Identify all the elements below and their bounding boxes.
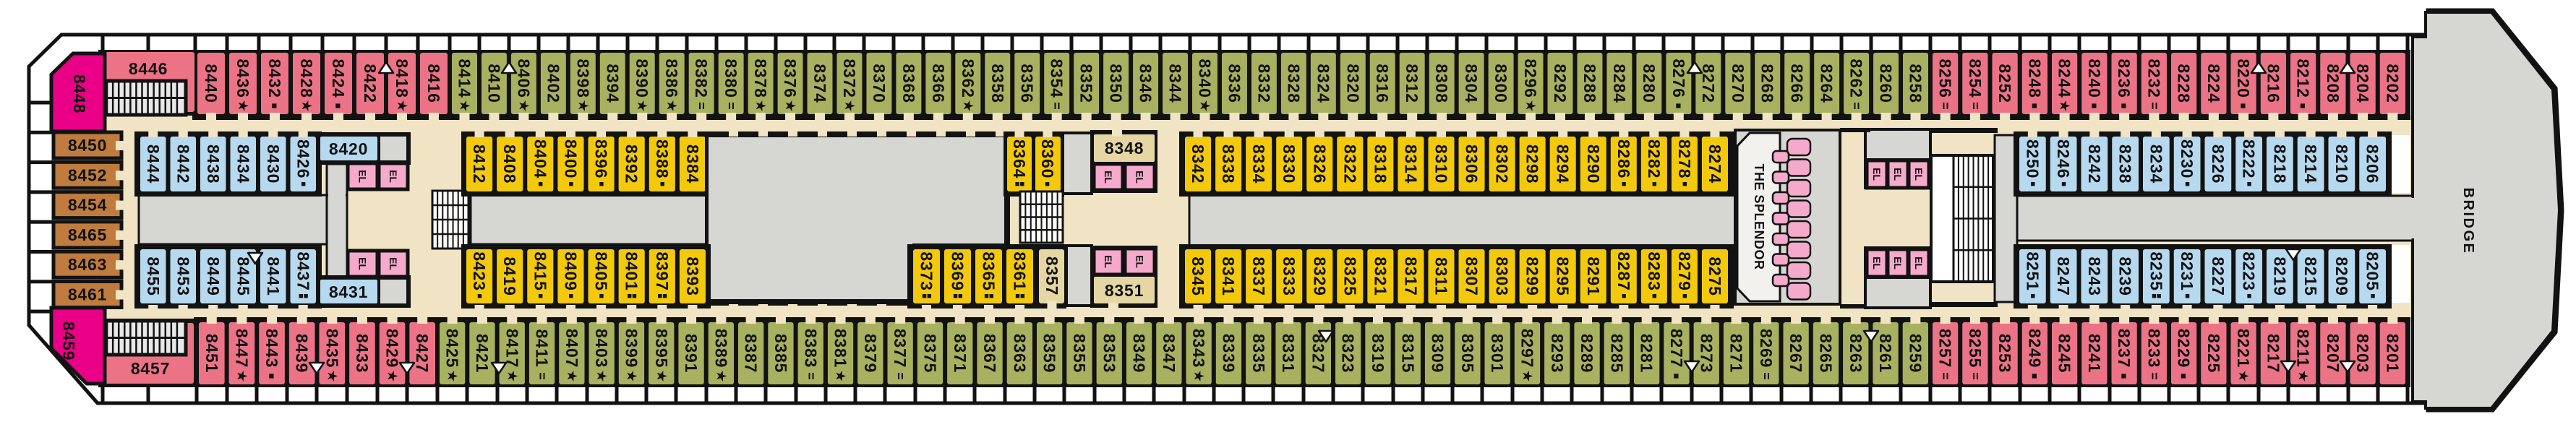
svg-text:▪▪: ▪▪ — [657, 287, 667, 305]
svg-text:=: = — [1849, 102, 1864, 111]
svg-text:8215: 8215 — [2301, 256, 2320, 296]
svg-text:8253: 8253 — [1995, 334, 2014, 373]
svg-text:8376: 8376 — [781, 59, 800, 98]
svg-text:=: = — [694, 102, 709, 111]
svg-text:8283: 8283 — [1645, 251, 1664, 290]
svg-text:8422: 8422 — [361, 64, 380, 103]
svg-text:8207: 8207 — [2324, 334, 2342, 373]
svg-text:EL: EL — [1871, 256, 1883, 269]
svg-text:8336: 8336 — [1225, 64, 1244, 103]
svg-text:8212: 8212 — [2294, 59, 2313, 98]
svg-text:8400: 8400 — [561, 139, 580, 178]
svg-text:8448: 8448 — [70, 74, 89, 113]
svg-text:■: ■ — [2119, 374, 2130, 380]
svg-text:8309: 8309 — [1429, 334, 1447, 373]
svg-text:▪: ▪ — [301, 175, 306, 193]
svg-text:8385: 8385 — [771, 334, 790, 373]
svg-text:▪: ▪ — [2246, 175, 2251, 193]
svg-text:8285: 8285 — [1607, 334, 1626, 373]
svg-text:EL: EL — [1913, 256, 1925, 269]
svg-text:8217: 8217 — [2264, 334, 2282, 373]
svg-text:★: ★ — [458, 100, 471, 112]
svg-text:▪: ▪ — [1651, 175, 1656, 193]
svg-text:8278: 8278 — [1675, 139, 1694, 178]
svg-text:8332: 8332 — [1254, 64, 1273, 103]
svg-text:8267: 8267 — [1786, 334, 1805, 373]
svg-text:8317: 8317 — [1401, 256, 1420, 296]
svg-text:8223: 8223 — [2240, 251, 2259, 290]
svg-text:8357: 8357 — [1043, 256, 1061, 296]
svg-text:8306: 8306 — [1463, 144, 1481, 184]
svg-text:8446: 8446 — [129, 59, 168, 78]
svg-text:8366: 8366 — [929, 64, 948, 103]
svg-text:8308: 8308 — [1432, 64, 1451, 103]
svg-text:8433: 8433 — [353, 334, 372, 373]
svg-text:★: ★ — [2296, 371, 2310, 382]
svg-text:▪▪: ▪▪ — [1014, 175, 1024, 193]
svg-text:8276: 8276 — [1669, 59, 1688, 98]
svg-text:8226: 8226 — [2209, 144, 2228, 184]
svg-text:EL: EL — [388, 257, 399, 270]
svg-text:8454: 8454 — [68, 196, 107, 215]
svg-text:8275: 8275 — [1706, 256, 1724, 296]
svg-text:8225: 8225 — [2204, 334, 2223, 373]
svg-text:▪: ▪ — [2246, 287, 2251, 305]
svg-text:8418: 8418 — [393, 59, 411, 98]
svg-text:8368: 8368 — [899, 64, 918, 103]
svg-text:8310: 8310 — [1432, 144, 1450, 184]
svg-text:EL: EL — [1103, 255, 1114, 268]
svg-text:■: ■ — [270, 103, 281, 110]
svg-text:8423: 8423 — [470, 251, 489, 290]
svg-text:▪: ▪ — [2030, 175, 2035, 193]
svg-text:8438: 8438 — [204, 144, 223, 184]
svg-text:8452: 8452 — [68, 165, 107, 184]
svg-text:8279: 8279 — [1675, 251, 1694, 290]
svg-text:★: ★ — [517, 100, 531, 112]
svg-text:8415: 8415 — [531, 251, 549, 290]
svg-text:8402: 8402 — [544, 64, 562, 103]
svg-text:8232: 8232 — [2144, 59, 2163, 98]
svg-text:8447: 8447 — [232, 329, 251, 368]
svg-text:8444: 8444 — [144, 144, 163, 184]
svg-text:8331: 8331 — [1279, 334, 1298, 373]
svg-text:8428: 8428 — [297, 59, 316, 98]
svg-text:8251: 8251 — [2023, 251, 2042, 290]
svg-text:8401: 8401 — [622, 251, 641, 290]
svg-text:8323: 8323 — [1339, 334, 1358, 373]
svg-text:8270: 8270 — [1729, 64, 1747, 103]
svg-text:8381: 8381 — [831, 329, 850, 368]
svg-text:8363: 8363 — [1010, 334, 1029, 373]
svg-text:8373: 8373 — [917, 251, 936, 290]
svg-text:8229: 8229 — [2175, 329, 2194, 368]
svg-text:8315: 8315 — [1398, 334, 1417, 373]
svg-text:8344: 8344 — [1166, 64, 1185, 103]
svg-text:8445: 8445 — [234, 256, 252, 296]
svg-text:8439: 8439 — [293, 334, 312, 373]
svg-text:8361: 8361 — [1011, 251, 1030, 290]
svg-text:8244: 8244 — [2055, 59, 2074, 98]
svg-text:▪: ▪ — [568, 287, 573, 305]
svg-text:★: ★ — [2058, 100, 2071, 112]
svg-text:8290: 8290 — [1584, 144, 1603, 184]
svg-text:EL: EL — [357, 257, 369, 270]
svg-text:8379: 8379 — [861, 334, 880, 373]
svg-text:8362: 8362 — [959, 59, 977, 98]
svg-text:■: ■ — [1671, 374, 1682, 380]
svg-text:★: ★ — [625, 371, 638, 382]
svg-text:=: = — [1938, 102, 1953, 111]
svg-text:8391: 8391 — [682, 334, 701, 373]
svg-text:★: ★ — [1192, 371, 1206, 382]
svg-text:★: ★ — [235, 371, 249, 382]
svg-text:=: = — [803, 372, 818, 381]
svg-text:8367: 8367 — [980, 334, 999, 373]
svg-text:8342: 8342 — [1189, 144, 1207, 184]
svg-text:★: ★ — [665, 100, 679, 112]
svg-text:8340: 8340 — [1195, 59, 1214, 98]
svg-text:8233: 8233 — [2144, 329, 2163, 368]
svg-text:8414: 8414 — [455, 59, 474, 98]
svg-text:EL: EL — [1103, 171, 1114, 184]
svg-text:8214: 8214 — [2301, 144, 2320, 184]
svg-text:■: ■ — [2298, 103, 2308, 110]
svg-text:8257: 8257 — [1936, 329, 1955, 368]
svg-text:8338: 8338 — [1219, 144, 1238, 184]
svg-text:8220: 8220 — [2234, 59, 2253, 98]
svg-text:8236: 8236 — [2115, 59, 2134, 98]
svg-text:8221: 8221 — [2234, 329, 2253, 368]
svg-text:8280: 8280 — [1640, 64, 1659, 103]
svg-text:★: ★ — [834, 371, 847, 382]
svg-text:▪: ▪ — [1682, 175, 1687, 193]
svg-text:8219: 8219 — [2270, 256, 2289, 296]
svg-text:8297: 8297 — [1518, 329, 1536, 368]
svg-text:8328: 8328 — [1284, 64, 1303, 103]
svg-text:=: = — [2147, 102, 2161, 111]
svg-text:8386: 8386 — [662, 59, 681, 98]
svg-text:8289: 8289 — [1578, 334, 1596, 373]
svg-text:8318: 8318 — [1371, 144, 1390, 184]
svg-text:EL: EL — [357, 170, 369, 183]
svg-text:▪: ▪ — [1682, 287, 1687, 305]
svg-text:8374: 8374 — [810, 64, 829, 103]
svg-text:8216: 8216 — [2264, 64, 2282, 103]
svg-text:EL: EL — [1892, 168, 1904, 181]
svg-text:8356: 8356 — [1018, 64, 1037, 103]
svg-text:8260: 8260 — [1877, 64, 1896, 103]
svg-text:8333: 8333 — [1280, 256, 1298, 296]
svg-text:8201: 8201 — [2383, 334, 2402, 373]
svg-text:8382: 8382 — [692, 59, 711, 98]
svg-text:■: ■ — [333, 103, 344, 110]
svg-text:8360: 8360 — [1038, 139, 1057, 178]
svg-text:8389: 8389 — [711, 329, 730, 368]
svg-text:8208: 8208 — [2324, 64, 2342, 103]
svg-text:8224: 8224 — [2204, 64, 2223, 103]
svg-text:8351: 8351 — [1105, 281, 1144, 300]
svg-text:★: ★ — [654, 371, 668, 382]
svg-text:8266: 8266 — [1788, 64, 1807, 103]
svg-text:8281: 8281 — [1638, 334, 1656, 373]
svg-text:8258: 8258 — [1907, 64, 1925, 103]
svg-text:8352: 8352 — [1077, 64, 1096, 103]
svg-text:8432: 8432 — [265, 59, 284, 98]
svg-text:=: = — [535, 372, 549, 381]
svg-text:8354: 8354 — [1048, 59, 1066, 98]
svg-text:8261: 8261 — [1876, 334, 1895, 373]
svg-text:8316: 8316 — [1373, 64, 1392, 103]
svg-text:★: ★ — [300, 100, 314, 112]
svg-text:8411: 8411 — [533, 329, 552, 367]
svg-text:8252: 8252 — [1995, 64, 2014, 103]
svg-text:8299: 8299 — [1523, 256, 1542, 296]
svg-text:★: ★ — [325, 371, 339, 382]
svg-text:8288: 8288 — [1580, 64, 1599, 103]
svg-text:8442: 8442 — [174, 144, 192, 184]
svg-text:8209: 8209 — [2332, 256, 2351, 296]
svg-text:▪: ▪ — [2370, 287, 2375, 305]
svg-text:8291: 8291 — [1584, 256, 1603, 296]
svg-text:8392: 8392 — [622, 144, 641, 184]
svg-text:8453: 8453 — [174, 256, 192, 296]
svg-text:8371: 8371 — [951, 334, 970, 373]
svg-text:8425: 8425 — [443, 329, 462, 368]
svg-text:=: = — [1050, 102, 1064, 111]
svg-text:8262: 8262 — [1847, 59, 1866, 98]
svg-text:8365: 8365 — [980, 251, 998, 290]
svg-text:8237: 8237 — [2115, 329, 2134, 368]
svg-text:▪: ▪ — [599, 175, 604, 193]
svg-text:8451: 8451 — [202, 334, 221, 373]
svg-text:8426: 8426 — [294, 139, 312, 178]
svg-text:=: = — [2147, 372, 2161, 381]
svg-text:★: ★ — [576, 100, 590, 112]
svg-text:8405: 8405 — [592, 251, 611, 290]
svg-text:▪: ▪ — [1621, 175, 1626, 193]
svg-text:8329: 8329 — [1310, 256, 1329, 296]
svg-text:8243: 8243 — [2085, 256, 2104, 296]
svg-text:8286: 8286 — [1614, 139, 1633, 178]
svg-text:8321: 8321 — [1371, 256, 1390, 296]
svg-text:★: ★ — [1198, 100, 1212, 112]
svg-text:8302: 8302 — [1493, 144, 1512, 184]
svg-text:8218: 8218 — [2270, 144, 2289, 184]
svg-text:8437: 8437 — [294, 251, 312, 290]
svg-text:8387: 8387 — [742, 334, 761, 373]
svg-text:8395: 8395 — [652, 329, 671, 368]
svg-text:8206: 8206 — [2363, 144, 2382, 184]
svg-text:8348: 8348 — [1105, 139, 1144, 158]
svg-text:★: ★ — [636, 100, 649, 112]
svg-text:8350: 8350 — [1107, 64, 1126, 103]
svg-text:★: ★ — [595, 371, 609, 382]
svg-text:▪: ▪ — [1651, 287, 1656, 305]
svg-text:8355: 8355 — [1070, 334, 1089, 373]
svg-text:8341: 8341 — [1219, 256, 1238, 296]
svg-text:8359: 8359 — [1040, 334, 1059, 373]
svg-text:8255: 8255 — [1966, 329, 1985, 368]
svg-text:=: = — [1938, 372, 1953, 381]
svg-text:▪▪: ▪▪ — [984, 287, 994, 305]
svg-text:8409: 8409 — [561, 251, 580, 290]
svg-text:▪: ▪ — [2185, 175, 2190, 193]
svg-text:8268: 8268 — [1758, 64, 1777, 103]
svg-text:BRIDGE: BRIDGE — [2460, 188, 2476, 255]
svg-text:▪▪: ▪▪ — [627, 287, 637, 305]
svg-text:★: ★ — [236, 100, 250, 112]
svg-text:EL: EL — [1871, 168, 1883, 181]
svg-text:8326: 8326 — [1310, 144, 1329, 184]
svg-text:=: = — [893, 372, 907, 381]
svg-text:8461: 8461 — [68, 285, 107, 304]
svg-text:8234: 8234 — [2147, 144, 2165, 184]
svg-text:■: ■ — [2119, 103, 2130, 110]
svg-text:8245: 8245 — [2055, 334, 2074, 373]
svg-text:8259: 8259 — [1906, 334, 1925, 373]
svg-text:8407: 8407 — [562, 329, 581, 368]
svg-text:▪: ▪ — [568, 175, 573, 193]
svg-text:8436: 8436 — [234, 59, 252, 98]
svg-text:▪▪: ▪▪ — [922, 287, 932, 305]
svg-text:8298: 8298 — [1523, 144, 1542, 184]
svg-text:8380: 8380 — [722, 59, 740, 98]
svg-text:8419: 8419 — [500, 256, 519, 296]
svg-text:▪▪: ▪▪ — [2152, 287, 2162, 305]
svg-text:★: ★ — [1524, 100, 1538, 112]
svg-text:8440: 8440 — [202, 64, 221, 103]
svg-text:8249: 8249 — [2025, 329, 2044, 368]
svg-text:8465: 8465 — [68, 225, 107, 244]
svg-text:8307: 8307 — [1463, 256, 1481, 296]
svg-text:8230: 8230 — [2178, 139, 2196, 178]
svg-text:▪: ▪ — [2061, 175, 2066, 193]
svg-text:8273: 8273 — [1697, 334, 1716, 373]
svg-text:8424: 8424 — [329, 59, 348, 98]
svg-text:■: ■ — [2029, 374, 2040, 380]
svg-text:8256: 8256 — [1936, 59, 1955, 98]
svg-text:▪: ▪ — [1045, 175, 1051, 193]
svg-text:8272: 8272 — [1699, 64, 1718, 103]
svg-text:8430: 8430 — [264, 144, 283, 184]
svg-text:8210: 8210 — [2332, 144, 2351, 184]
svg-text:8293: 8293 — [1548, 334, 1567, 373]
svg-text:8406: 8406 — [514, 59, 533, 98]
svg-text:▪▪: ▪▪ — [1015, 287, 1025, 305]
svg-text:8330: 8330 — [1280, 144, 1298, 184]
svg-text:8427: 8427 — [413, 334, 432, 373]
svg-text:8265: 8265 — [1816, 334, 1835, 373]
svg-text:8384: 8384 — [683, 144, 702, 184]
svg-text:8295: 8295 — [1554, 256, 1572, 296]
svg-text:8205: 8205 — [2363, 251, 2382, 290]
svg-text:8399: 8399 — [622, 329, 641, 368]
svg-text:8202: 8202 — [2383, 64, 2402, 103]
svg-text:8305: 8305 — [1458, 334, 1477, 373]
svg-text:8277: 8277 — [1667, 329, 1686, 368]
svg-text:8383: 8383 — [801, 329, 820, 368]
svg-text:8203: 8203 — [2353, 334, 2372, 373]
svg-text:=: = — [1968, 102, 1982, 111]
svg-text:8247: 8247 — [2054, 256, 2073, 296]
svg-text:8263: 8263 — [1847, 334, 1865, 373]
svg-text:▪: ▪ — [1621, 287, 1626, 305]
svg-text:8320: 8320 — [1343, 64, 1362, 103]
svg-text:8353: 8353 — [1100, 334, 1118, 373]
svg-text:▪▪: ▪▪ — [298, 287, 308, 305]
svg-text:8269: 8269 — [1757, 329, 1776, 368]
svg-text:8431: 8431 — [329, 282, 368, 301]
svg-text:8300: 8300 — [1492, 64, 1510, 103]
svg-text:8388: 8388 — [653, 139, 672, 178]
svg-text:★: ★ — [505, 371, 519, 382]
svg-text:★: ★ — [385, 371, 399, 382]
svg-text:8420: 8420 — [329, 139, 368, 158]
svg-text:▪: ▪ — [599, 287, 604, 305]
svg-text:8204: 8204 — [2353, 64, 2372, 103]
svg-text:8240: 8240 — [2085, 59, 2104, 98]
svg-text:8393: 8393 — [683, 256, 702, 296]
svg-text:★: ★ — [842, 100, 856, 112]
svg-text:★: ★ — [445, 371, 459, 382]
svg-text:★: ★ — [2237, 371, 2251, 382]
svg-text:8304: 8304 — [1462, 64, 1481, 103]
svg-text:■: ■ — [1673, 103, 1684, 110]
svg-text:8375: 8375 — [920, 334, 939, 373]
svg-text:8312: 8312 — [1403, 64, 1421, 103]
svg-text:8398: 8398 — [573, 59, 592, 98]
svg-text:=: = — [1968, 372, 1982, 381]
svg-text:8231: 8231 — [2178, 251, 2196, 290]
svg-text:8238: 8238 — [2116, 144, 2135, 184]
svg-text:8429: 8429 — [383, 329, 402, 368]
svg-text:▪: ▪ — [659, 175, 664, 193]
svg-text:8264: 8264 — [1818, 64, 1836, 103]
svg-text:▪: ▪ — [2185, 287, 2190, 305]
svg-text:8287: 8287 — [1614, 251, 1633, 290]
svg-text:8324: 8324 — [1314, 64, 1332, 103]
svg-text:8449: 8449 — [204, 256, 223, 296]
svg-text:8296: 8296 — [1521, 59, 1540, 98]
svg-text:★: ★ — [565, 371, 578, 382]
svg-text:8346: 8346 — [1137, 64, 1155, 103]
svg-text:8441: 8441 — [264, 256, 283, 296]
svg-text:8311: 8311 — [1432, 257, 1450, 296]
svg-text:■: ■ — [2029, 103, 2040, 110]
svg-text:8345: 8345 — [1189, 256, 1207, 296]
svg-text:8228: 8228 — [2175, 64, 2194, 103]
svg-text:EL: EL — [388, 170, 399, 183]
svg-text:8349: 8349 — [1130, 334, 1149, 373]
svg-text:★: ★ — [1520, 371, 1534, 382]
svg-text:8284: 8284 — [1610, 64, 1629, 103]
svg-text:8412: 8412 — [470, 144, 489, 184]
svg-text:8235: 8235 — [2147, 251, 2165, 290]
svg-text:■: ■ — [267, 374, 278, 380]
svg-text:8394: 8394 — [603, 64, 622, 103]
svg-text:8322: 8322 — [1340, 144, 1359, 184]
svg-text:8443: 8443 — [262, 329, 281, 368]
svg-text:8378: 8378 — [751, 59, 770, 98]
svg-text:■: ■ — [2178, 374, 2189, 380]
svg-text:▪: ▪ — [538, 287, 543, 305]
svg-text:8403: 8403 — [592, 329, 611, 368]
svg-text:8347: 8347 — [1160, 334, 1178, 373]
svg-text:8337: 8337 — [1249, 256, 1268, 296]
svg-text:8408: 8408 — [500, 144, 519, 184]
svg-text:8325: 8325 — [1340, 256, 1359, 296]
